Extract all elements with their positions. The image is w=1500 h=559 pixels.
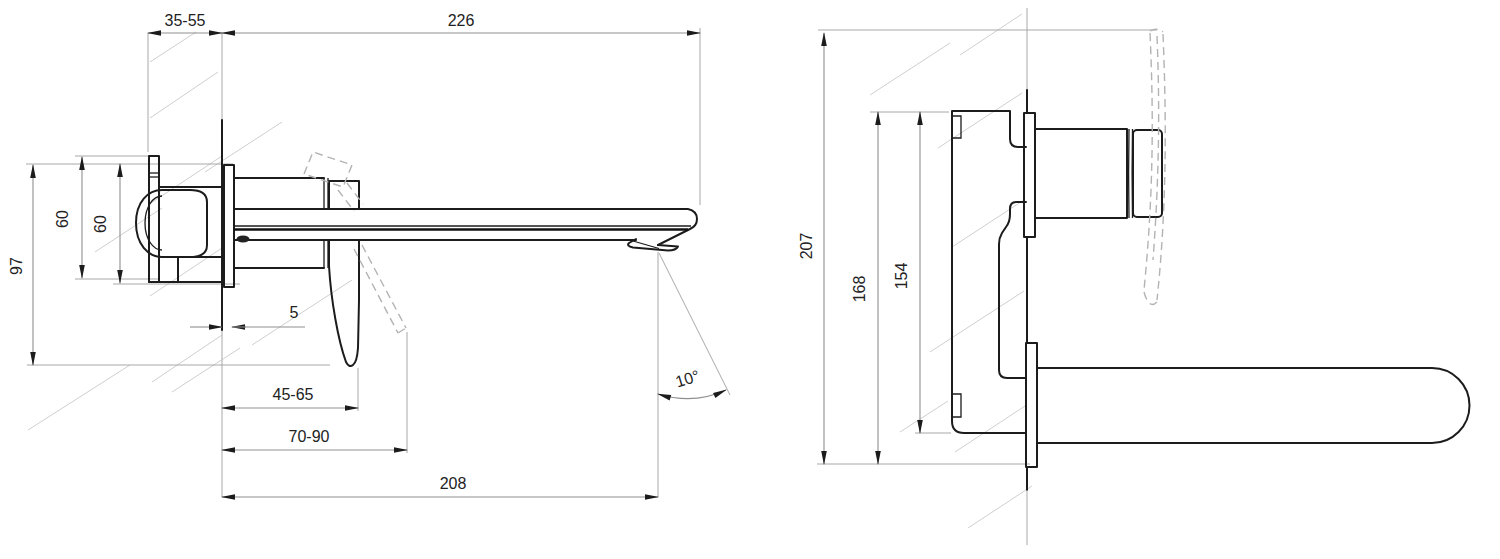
- valve-body: [136, 190, 207, 257]
- dim-bracket-height-label: 60: [54, 210, 71, 228]
- inwall-housing-front: [952, 111, 1026, 433]
- housing-inner-contour: [999, 202, 1026, 378]
- handle-open-dashed: [362, 245, 406, 328]
- handle-cap-side: [329, 181, 359, 209]
- side-wall-hatching: [28, 32, 352, 430]
- front-dimensions: 207 168 154: [798, 33, 920, 464]
- lever-handle-blade: [329, 240, 359, 366]
- spout-escutcheon-front: [1026, 343, 1037, 467]
- dim-housing-height-label: 154: [893, 263, 910, 290]
- dim-handle-min-label: 45-65: [273, 386, 314, 403]
- side-view: 35-55 226 97 60 60 5 45-65 70-90 208 10°: [8, 12, 730, 497]
- dim-plate-gap-label: 5: [290, 304, 299, 321]
- handle-up-tip-dashed: [304, 152, 352, 187]
- side-dimensions: 35-55 226 97 60 60 5 45-65 70-90 208 10°: [8, 12, 726, 497]
- mounting-bracket: [149, 156, 159, 282]
- mixer-front: [1024, 113, 1162, 237]
- drawing-canvas: 35-55 226 97 60 60 5 45-65 70-90 208 10°: [0, 0, 1500, 559]
- dim-total-height-label: 97: [8, 257, 25, 275]
- escutcheon-plate-side: [224, 165, 234, 287]
- housing-notch-top: [952, 116, 961, 138]
- dim-spout-angle-label: 10°: [673, 367, 701, 390]
- mixer-escutcheon-front: [1024, 113, 1035, 237]
- front-view: 207 168 154: [798, 8, 1470, 545]
- handle-body-front: [1035, 129, 1127, 218]
- dim-spout-angle-arc: [658, 390, 726, 399]
- inwall-valve-assembly: [136, 120, 222, 330]
- mixer-side-profile: [224, 165, 697, 366]
- handle-travel-dashed: [304, 152, 406, 333]
- plate-clip-detail: [237, 236, 250, 243]
- dim-wall-depth-label: 35-55: [165, 12, 206, 29]
- dim-spout-length-label: 226: [448, 12, 475, 29]
- valve-lower-housing: [178, 257, 222, 282]
- dim-plate-height-label: 60: [92, 215, 109, 233]
- dim-body-height-label: 168: [851, 276, 868, 303]
- dim-spout-reach-label: 208: [440, 475, 467, 492]
- dim-overall-height-label: 207: [798, 233, 815, 260]
- housing-outline: [952, 111, 1026, 433]
- dim-handle-max-label: 70-90: [289, 428, 330, 445]
- spout-front: [1026, 343, 1470, 467]
- spout-bar-front: [1037, 368, 1470, 443]
- faucet-installation-drawing: 35-55 226 97 60 60 5 45-65 70-90 208 10°: [0, 0, 1500, 559]
- housing-notch-bottom: [952, 394, 961, 417]
- side-extension-lines: [26, 28, 730, 497]
- front-extension-lines: [817, 30, 1157, 464]
